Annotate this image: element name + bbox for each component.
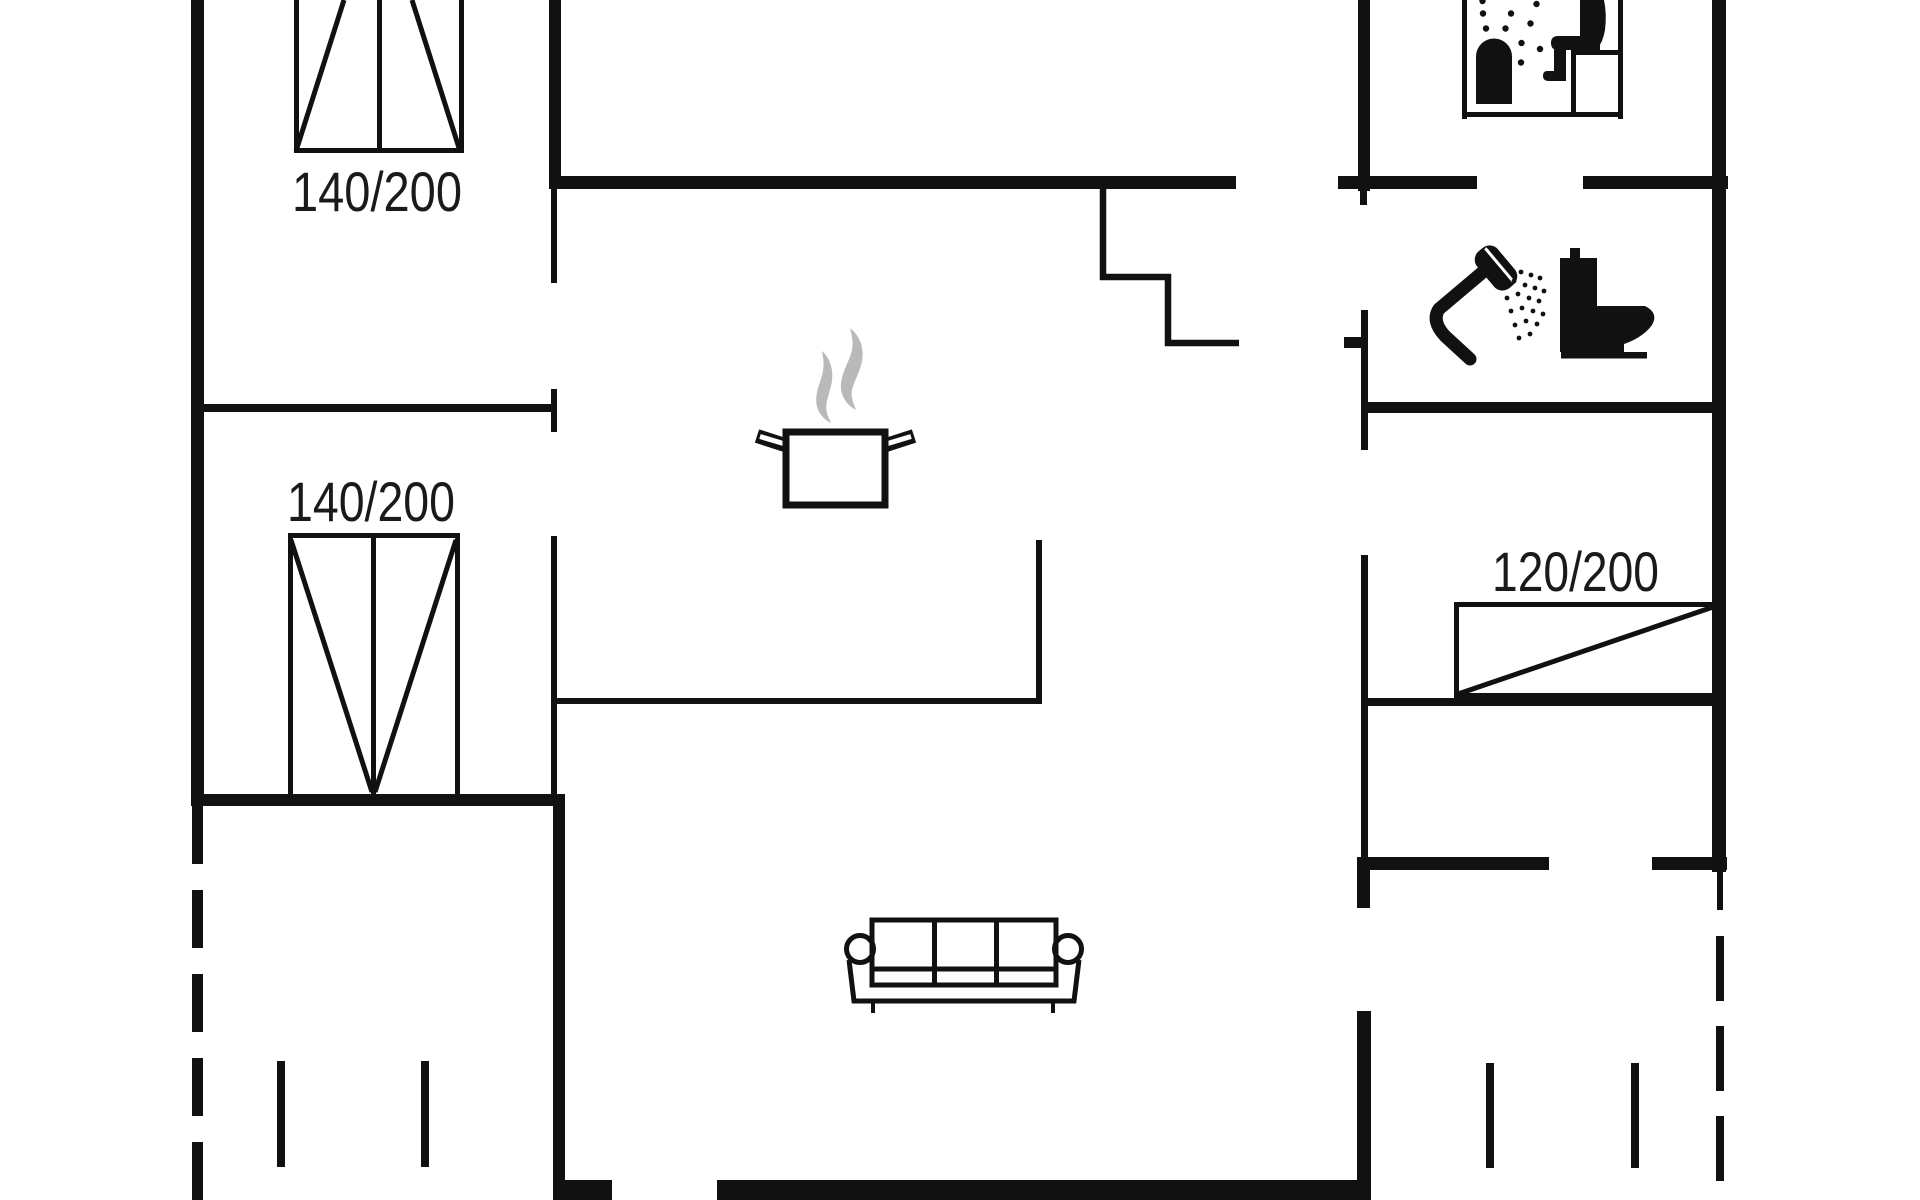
svg-text:140/200: 140/200 — [292, 160, 462, 223]
svg-text:120/200: 120/200 — [1492, 540, 1659, 603]
svg-text:140/200: 140/200 — [287, 470, 455, 533]
